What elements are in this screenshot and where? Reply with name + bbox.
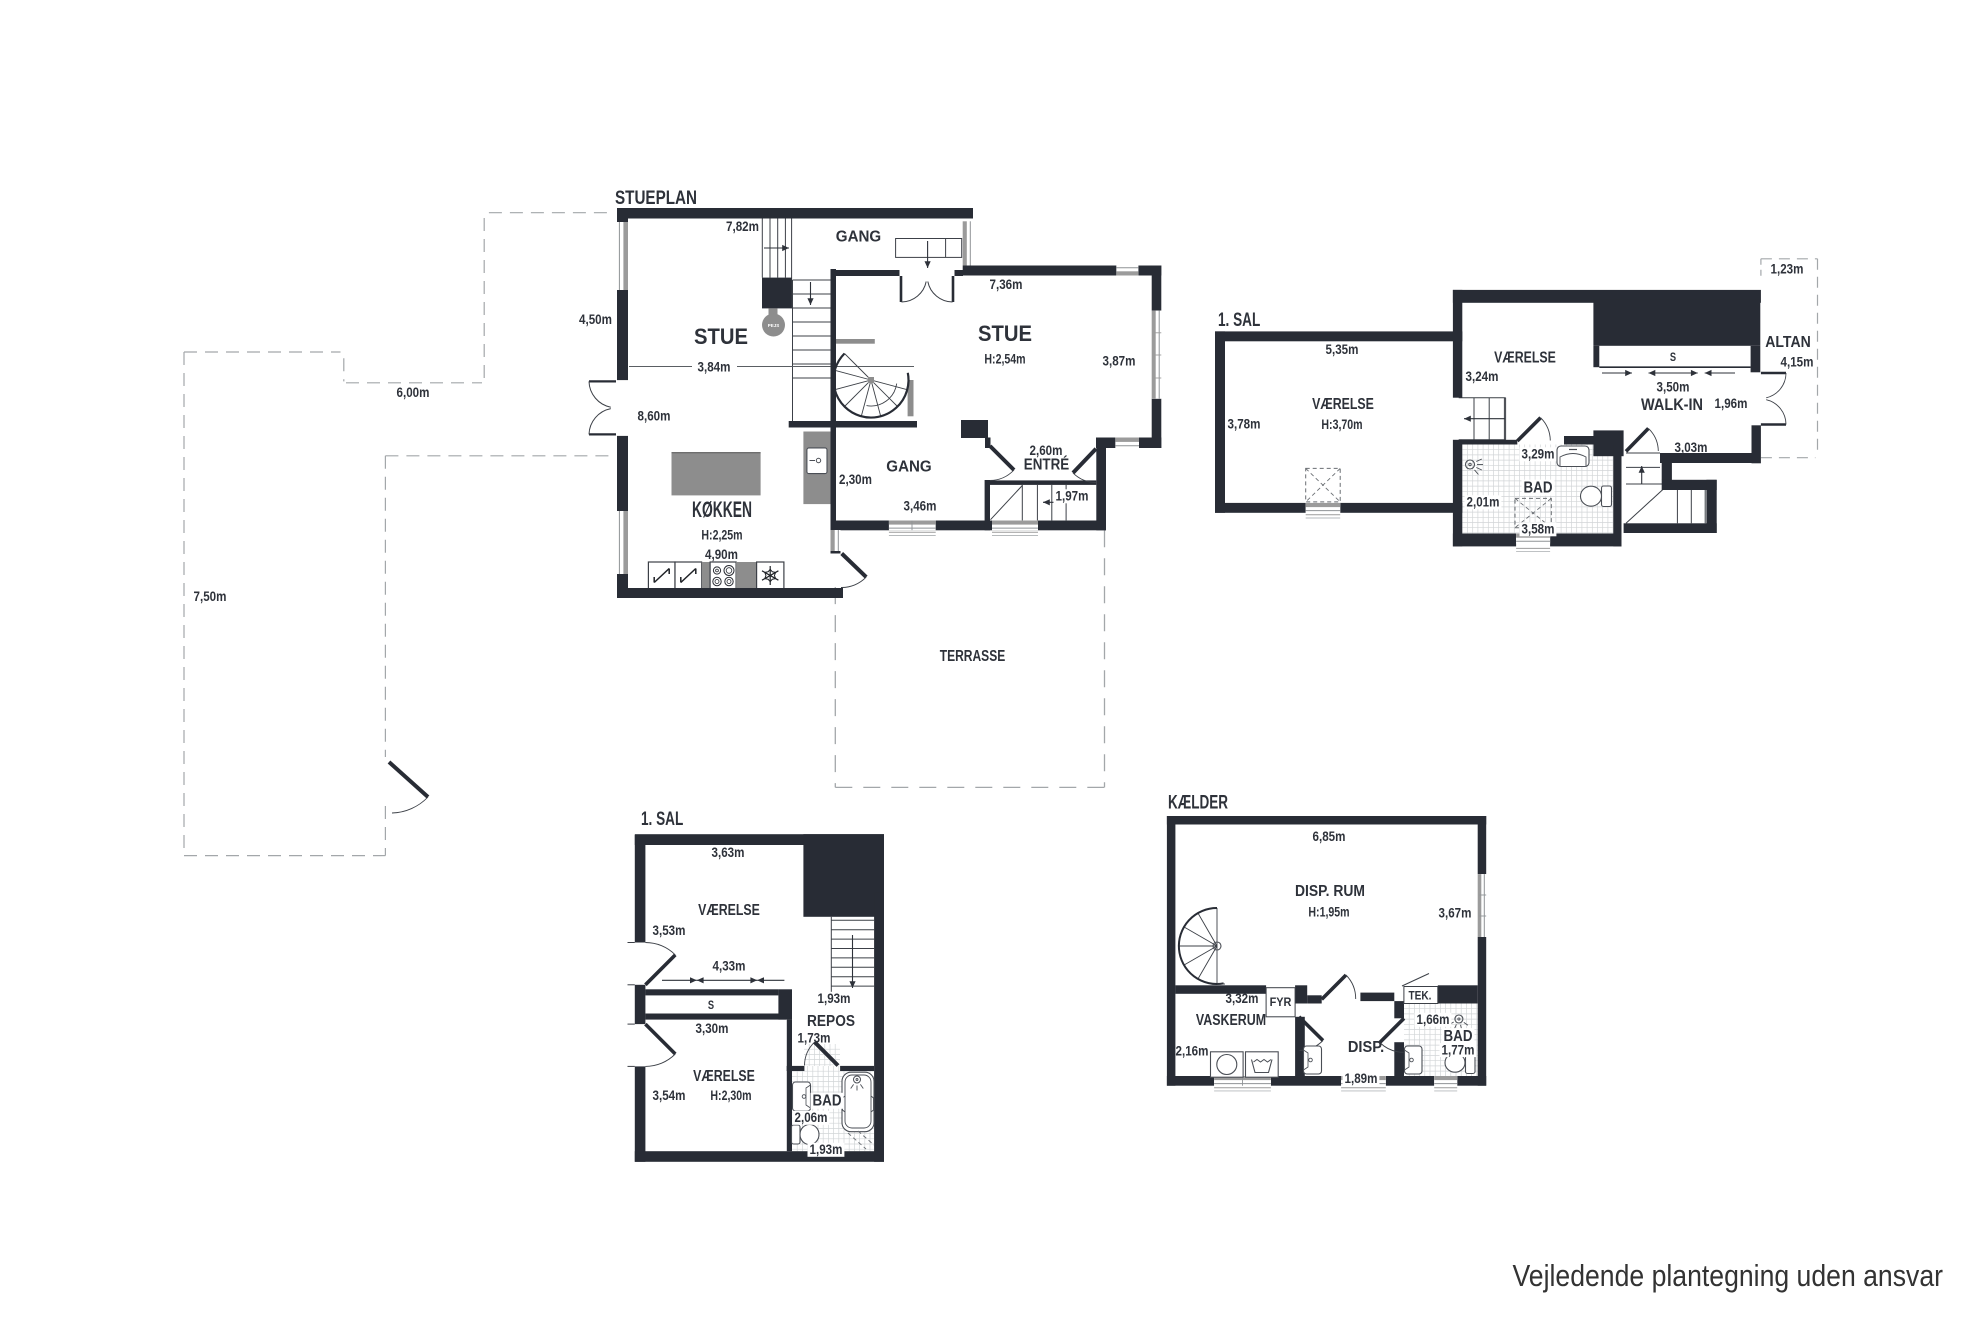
- svg-text:3,54m: 3,54m: [653, 1087, 686, 1103]
- svg-text:1,73m: 1,73m: [798, 1030, 831, 1046]
- svg-text:3,78m: 3,78m: [1228, 416, 1261, 432]
- svg-text:3,24m: 3,24m: [1466, 368, 1499, 384]
- svg-text:Vejledende plantegning uden an: Vejledende plantegning uden ansvar: [1513, 1258, 1944, 1293]
- svg-text:1,77m: 1,77m: [1442, 1041, 1475, 1057]
- svg-text:6,00m: 6,00m: [397, 384, 430, 400]
- svg-text:5,35m: 5,35m: [1326, 341, 1359, 357]
- svg-text:TERRASSE: TERRASSE: [940, 648, 1006, 665]
- svg-text:H:2,54m: H:2,54m: [984, 351, 1025, 367]
- svg-text:3,63m: 3,63m: [712, 844, 745, 860]
- svg-text:ENTRÉ: ENTRÉ: [1024, 455, 1070, 474]
- svg-text:VASKERUM: VASKERUM: [1196, 1012, 1266, 1029]
- svg-text:3,30m: 3,30m: [696, 1020, 729, 1036]
- svg-text:3,32m: 3,32m: [1226, 990, 1259, 1006]
- svg-text:2,01m: 2,01m: [1467, 494, 1500, 510]
- svg-text:KØKKEN: KØKKEN: [692, 497, 752, 522]
- svg-text:PEJS: PEJS: [768, 323, 780, 328]
- svg-text:8,60m: 8,60m: [638, 408, 671, 424]
- svg-text:2,30m: 2,30m: [839, 471, 872, 487]
- svg-text:VÆRELSE: VÆRELSE: [693, 1068, 755, 1085]
- svg-text:TEK.: TEK.: [1409, 989, 1432, 1003]
- svg-text:4,50m: 4,50m: [579, 311, 612, 327]
- svg-text:VÆRELSE: VÆRELSE: [1494, 350, 1556, 367]
- svg-text:STUE: STUE: [694, 324, 748, 349]
- svg-text:S: S: [708, 998, 714, 1012]
- svg-text:4,15m: 4,15m: [1781, 354, 1814, 370]
- svg-text:DISP. RUM: DISP. RUM: [1295, 883, 1365, 900]
- svg-text:VÆRELSE: VÆRELSE: [698, 902, 760, 919]
- svg-text:1,89m: 1,89m: [1345, 1070, 1378, 1086]
- svg-text:BAD: BAD: [813, 1093, 842, 1110]
- svg-text:GANG: GANG: [836, 229, 881, 246]
- svg-text:1. SAL: 1. SAL: [641, 809, 684, 830]
- svg-text:3,50m: 3,50m: [1657, 379, 1690, 395]
- svg-text:REPOS: REPOS: [807, 1013, 855, 1030]
- svg-text:4,33m: 4,33m: [713, 958, 746, 974]
- svg-text:VÆRELSE: VÆRELSE: [1312, 396, 1374, 413]
- svg-text:6,85m: 6,85m: [1313, 828, 1346, 844]
- svg-text:H:2,30m: H:2,30m: [710, 1087, 751, 1103]
- svg-text:ALTAN: ALTAN: [1765, 334, 1811, 351]
- svg-text:H:3,70m: H:3,70m: [1321, 416, 1362, 432]
- svg-text:BAD: BAD: [1524, 480, 1553, 497]
- svg-text:GANG: GANG: [886, 459, 931, 476]
- svg-text:S: S: [1670, 350, 1676, 364]
- svg-text:3,03m: 3,03m: [1675, 439, 1708, 455]
- svg-text:4,90m: 4,90m: [705, 546, 738, 562]
- svg-text:3,84m: 3,84m: [698, 359, 731, 375]
- svg-text:3,67m: 3,67m: [1439, 905, 1472, 921]
- svg-text:1,93m: 1,93m: [810, 1141, 843, 1157]
- svg-text:2,16m: 2,16m: [1176, 1043, 1209, 1059]
- svg-text:STUE: STUE: [978, 321, 1032, 346]
- svg-text:3,46m: 3,46m: [904, 498, 937, 514]
- svg-text:3,87m: 3,87m: [1103, 353, 1136, 369]
- svg-text:KÆLDER: KÆLDER: [1168, 793, 1228, 814]
- svg-text:WALK-IN: WALK-IN: [1641, 395, 1703, 414]
- svg-text:H:1,95m: H:1,95m: [1308, 903, 1349, 919]
- svg-text:DISP.: DISP.: [1348, 1039, 1384, 1056]
- svg-text:3,29m: 3,29m: [1522, 446, 1555, 462]
- svg-text:1,96m: 1,96m: [1715, 395, 1748, 411]
- svg-text:FYR: FYR: [1270, 995, 1292, 1009]
- svg-text:7,36m: 7,36m: [990, 276, 1023, 292]
- svg-text:1,66m: 1,66m: [1417, 1011, 1450, 1027]
- svg-text:H:2,25m: H:2,25m: [701, 527, 742, 543]
- svg-text:1. SAL: 1. SAL: [1218, 310, 1261, 331]
- svg-text:7,50m: 7,50m: [194, 588, 227, 604]
- svg-text:3,58m: 3,58m: [1522, 521, 1555, 537]
- svg-text:1,97m: 1,97m: [1056, 488, 1089, 504]
- svg-text:1,93m: 1,93m: [818, 990, 851, 1006]
- svg-text:2,06m: 2,06m: [795, 1109, 828, 1125]
- svg-text:1,23m: 1,23m: [1771, 261, 1804, 277]
- svg-text:7,82m: 7,82m: [726, 218, 759, 234]
- svg-text:STUEPLAN: STUEPLAN: [615, 188, 697, 209]
- svg-text:3,53m: 3,53m: [653, 922, 686, 938]
